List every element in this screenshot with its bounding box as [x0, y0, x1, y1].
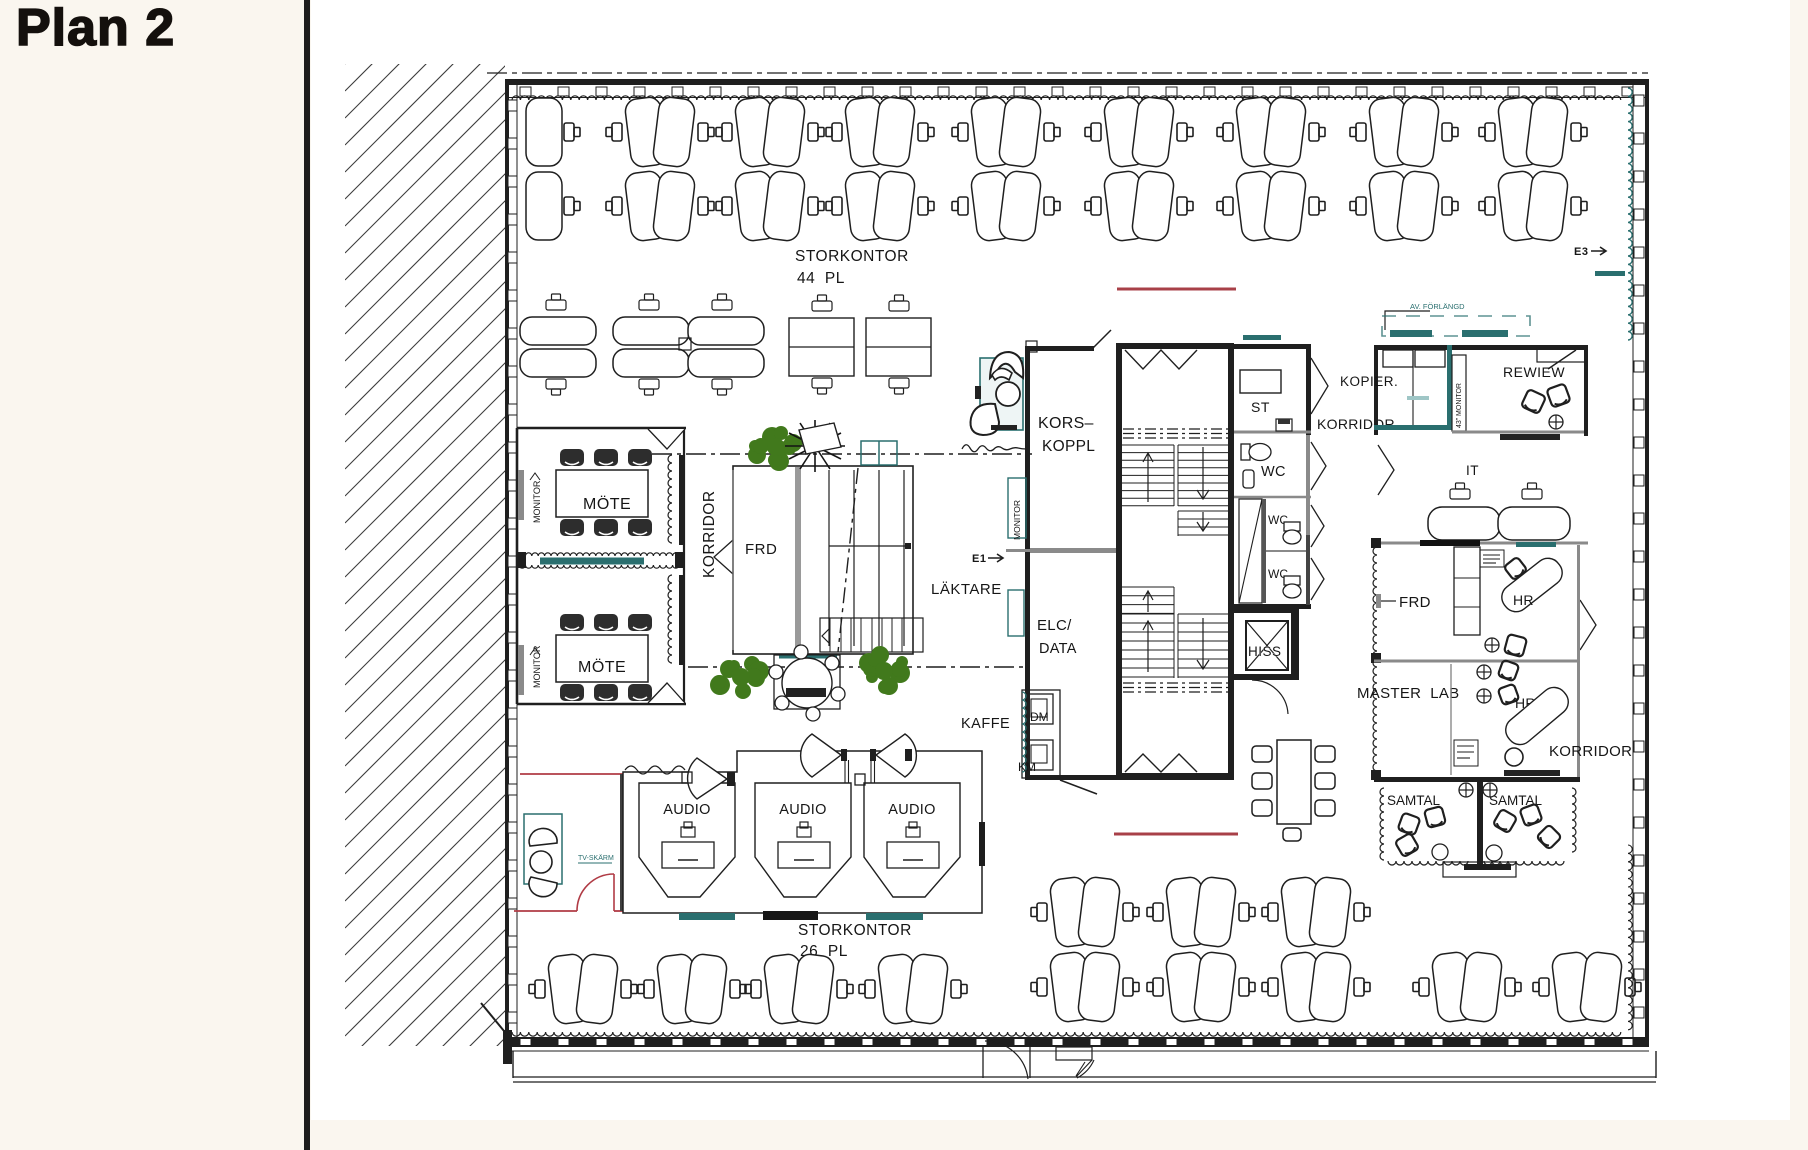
svg-text:AUDIO: AUDIO — [888, 802, 935, 818]
svg-text:LÄKTARE: LÄKTARE — [931, 581, 1002, 598]
svg-text:TV-SKÄRM: TV-SKÄRM — [578, 854, 614, 862]
svg-text:ST: ST — [1251, 399, 1270, 415]
svg-text:KM: KM — [1018, 760, 1036, 774]
svg-text:IT: IT — [1466, 463, 1479, 478]
svg-text:44 PL: 44 PL — [797, 270, 845, 287]
svg-text:DATA: DATA — [1039, 641, 1077, 657]
svg-text:KORRIDOR: KORRIDOR — [701, 490, 718, 578]
svg-text:SAMTAL: SAMTAL — [1387, 793, 1441, 808]
svg-text:Plan 2: Plan 2 — [16, 0, 175, 57]
svg-text:MÖTE: MÖTE — [583, 495, 631, 513]
svg-text:E1: E1 — [972, 553, 986, 565]
svg-text:AV. FÖRLÄNGD: AV. FÖRLÄNGD — [1410, 302, 1465, 311]
svg-text:ELC/: ELC/ — [1037, 617, 1072, 634]
svg-text:HISS: HISS — [1248, 644, 1282, 659]
svg-text:FRD: FRD — [745, 541, 777, 558]
svg-text:STORKONTOR: STORKONTOR — [798, 922, 912, 939]
svg-text:FRD: FRD — [1399, 594, 1431, 611]
svg-text:E3: E3 — [1574, 246, 1588, 258]
svg-text:SAMTAL: SAMTAL — [1489, 793, 1543, 808]
svg-text:MONITOR: MONITOR — [1012, 500, 1022, 540]
svg-text:KAFFE: KAFFE — [961, 716, 1010, 732]
svg-text:MONITOR: MONITOR — [532, 480, 542, 523]
svg-text:MASTER LAB: MASTER LAB — [1357, 685, 1460, 702]
svg-text:AUDIO: AUDIO — [779, 802, 826, 818]
svg-text:KOPPL: KOPPL — [1042, 438, 1095, 455]
svg-text:REWIEW: REWIEW — [1503, 364, 1565, 380]
svg-text:HR: HR — [1513, 592, 1534, 608]
svg-text:KORS–: KORS– — [1038, 415, 1094, 432]
svg-text:KORRIDOR: KORRIDOR — [1549, 743, 1632, 760]
svg-text:STORKONTOR: STORKONTOR — [795, 248, 909, 265]
svg-text:AUDIO: AUDIO — [663, 802, 710, 818]
svg-text:KOPIER.: KOPIER. — [1340, 374, 1398, 389]
svg-text:43” MONITOR: 43” MONITOR — [1456, 383, 1463, 428]
svg-text:WC: WC — [1261, 464, 1286, 480]
svg-text:MÖTE: MÖTE — [578, 658, 626, 676]
svg-text:DM: DM — [1030, 710, 1049, 724]
